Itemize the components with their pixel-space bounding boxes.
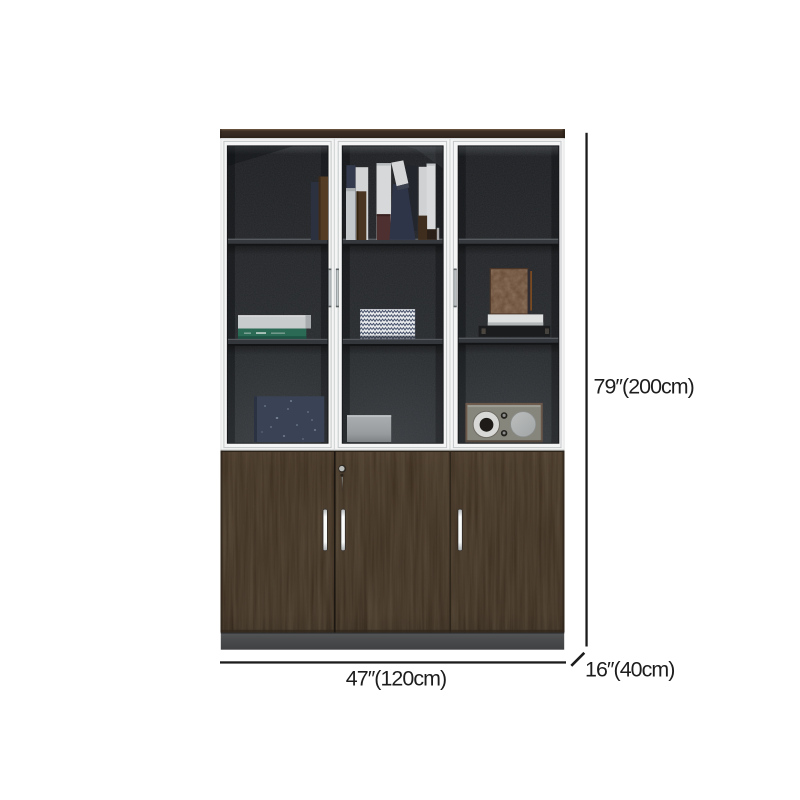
svg-text:47″(120cm): 47″(120cm) [346,667,446,691]
svg-text:16″(40cm): 16″(40cm) [585,658,674,682]
svg-text:79″(200cm): 79″(200cm) [594,375,694,399]
